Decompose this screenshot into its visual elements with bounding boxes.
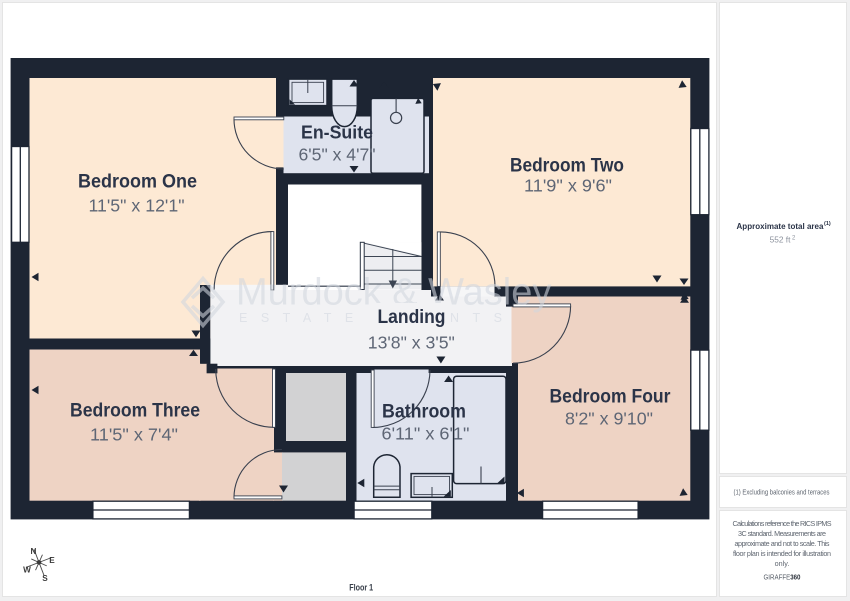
svg-text:(1) Excluding balconies and te: (1) Excluding balconies and terraces — [734, 488, 830, 497]
svg-text:11'5" x 7'4": 11'5" x 7'4" — [90, 425, 178, 445]
svg-text:Bedroom Three: Bedroom Three — [70, 401, 200, 422]
svg-text:6'5" x 4'7": 6'5" x 4'7" — [299, 145, 376, 165]
svg-text:Calculations reference the RIC: Calculations reference the RICS IPMS — [733, 519, 832, 528]
svg-text:Landing: Landing — [378, 307, 446, 328]
svg-text:8'2" x 9'10": 8'2" x 9'10" — [565, 409, 653, 429]
svg-text:E: E — [49, 556, 55, 565]
svg-text:Bedroom Two: Bedroom Two — [510, 156, 624, 177]
svg-text:N: N — [31, 547, 37, 556]
svg-text:552 ft: 552 ft — [770, 235, 791, 245]
svg-text:W: W — [23, 566, 31, 575]
svg-text:(1): (1) — [824, 221, 831, 227]
svg-text:floor plan is intended for ill: floor plan is intended for illustration — [733, 549, 831, 558]
svg-text:Approximate total area: Approximate total area — [737, 221, 824, 231]
svg-text:11'5" x 12'1": 11'5" x 12'1" — [89, 196, 185, 216]
svg-text:Floor 1: Floor 1 — [349, 583, 374, 594]
svg-text:Bedroom Four: Bedroom Four — [550, 387, 672, 408]
svg-text:Bedroom One: Bedroom One — [78, 172, 197, 193]
svg-text:13'8" x 3'5": 13'8" x 3'5" — [368, 333, 455, 353]
svg-text:GIRAFFE360: GIRAFFE360 — [764, 573, 801, 582]
svg-text:Bathroom: Bathroom — [382, 402, 466, 423]
svg-text:only.: only. — [775, 559, 790, 568]
svg-text:11'9" x 9'6": 11'9" x 9'6" — [524, 176, 612, 196]
svg-text:approximate and not to scale.: approximate and not to scale. This — [735, 539, 830, 548]
svg-text:En-Suite: En-Suite — [301, 123, 373, 143]
svg-text:3C standard. Measurements are: 3C standard. Measurements are — [738, 529, 826, 538]
svg-text:6'11" x 6'1": 6'11" x 6'1" — [382, 424, 470, 444]
svg-text:S: S — [42, 574, 48, 583]
